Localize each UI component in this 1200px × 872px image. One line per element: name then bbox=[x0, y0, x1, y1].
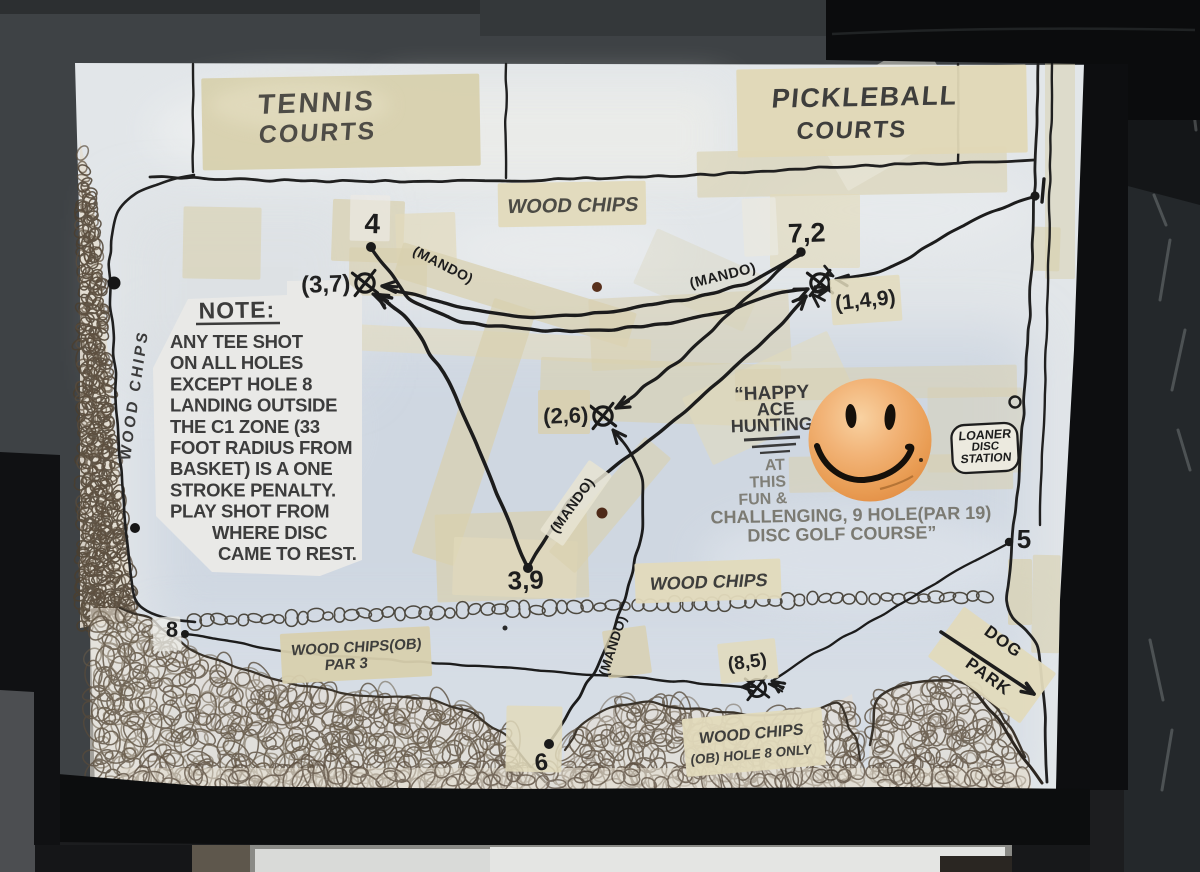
svg-text:DISC GOLF COURSE”: DISC GOLF COURSE” bbox=[747, 522, 936, 545]
svg-text:4: 4 bbox=[364, 208, 381, 240]
svg-text:6: 6 bbox=[534, 748, 550, 776]
svg-text:HUNTING: HUNTING bbox=[730, 414, 813, 437]
svg-text:ANY TEE SHOT: ANY TEE SHOT bbox=[170, 331, 304, 352]
svg-text:CAME TO REST.: CAME TO REST. bbox=[218, 543, 357, 564]
svg-text:COURTS: COURTS bbox=[258, 117, 377, 149]
svg-text:PICKLEBALL: PICKLEBALL bbox=[771, 79, 960, 113]
svg-text:FOOT RADIUS FROM: FOOT RADIUS FROM bbox=[170, 437, 352, 458]
svg-text:PAR 3: PAR 3 bbox=[324, 655, 368, 674]
svg-text:LANDING OUTSIDE: LANDING OUTSIDE bbox=[170, 395, 337, 416]
svg-text:TENNIS: TENNIS bbox=[257, 85, 377, 120]
svg-text:(3,7): (3,7) bbox=[301, 270, 351, 299]
svg-text:EXCEPT HOLE 8: EXCEPT HOLE 8 bbox=[170, 373, 312, 394]
svg-text:COURTS: COURTS bbox=[795, 116, 908, 145]
svg-text:STATION: STATION bbox=[960, 450, 1012, 467]
svg-text:(2,6): (2,6) bbox=[543, 402, 589, 429]
svg-text:BASKET) IS A ONE: BASKET) IS A ONE bbox=[170, 458, 332, 479]
svg-text:5: 5 bbox=[1017, 524, 1031, 554]
svg-text:7,2: 7,2 bbox=[787, 217, 826, 248]
svg-text:NOTE:: NOTE: bbox=[198, 296, 275, 323]
svg-text:AT: AT bbox=[764, 457, 785, 475]
svg-text:WOOD CHIPS: WOOD CHIPS bbox=[506, 194, 640, 218]
svg-text:3,9: 3,9 bbox=[507, 564, 544, 595]
svg-text:WHERE DISC: WHERE DISC bbox=[212, 522, 327, 543]
svg-text:THE C1 ZONE (33: THE C1 ZONE (33 bbox=[170, 416, 320, 437]
svg-text:WOOD CHIPS: WOOD CHIPS bbox=[649, 570, 770, 594]
svg-text:8: 8 bbox=[166, 617, 178, 642]
svg-text:STROKE PENALTY.: STROKE PENALTY. bbox=[170, 479, 336, 500]
svg-text:ON ALL HOLES: ON ALL HOLES bbox=[170, 352, 303, 373]
svg-text:THIS: THIS bbox=[749, 473, 786, 491]
svg-text:PLAY SHOT FROM: PLAY SHOT FROM bbox=[170, 501, 329, 522]
